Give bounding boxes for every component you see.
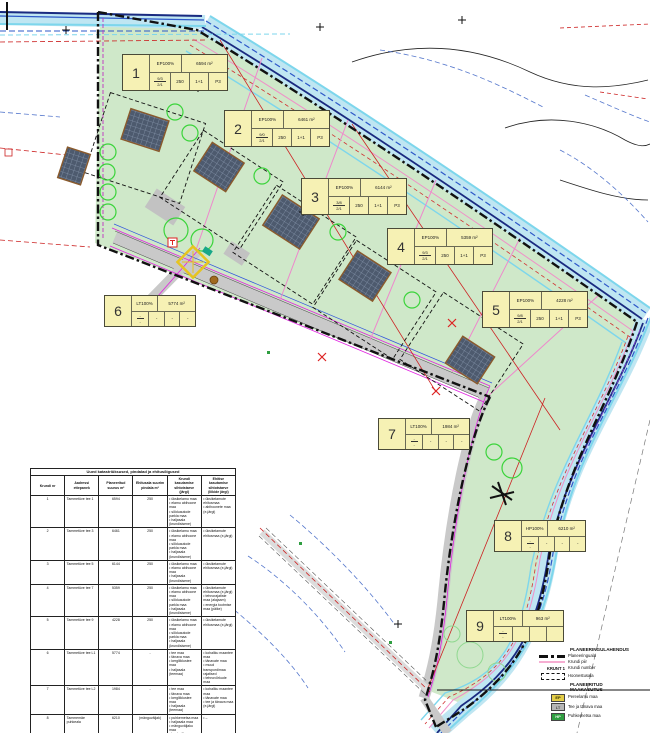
table-header-cell: Aadressi ettepanek bbox=[65, 476, 99, 496]
table-header-cell: Krundi kasutamise sihtotstarve (järgi) bbox=[167, 476, 201, 496]
plot-cell: 1+1 bbox=[292, 129, 311, 146]
plot-number: 6 bbox=[105, 296, 132, 326]
table-title: Uued katastriüksused, pindalad ja ehitus… bbox=[31, 469, 236, 476]
table-cell: 5774 bbox=[99, 649, 133, 686]
table-row: 1Tammetüve tee 16594250• üksikelamu maa … bbox=[31, 496, 236, 528]
table-row: 2Tammetüve tee 36461250• üksikelamu maa … bbox=[31, 528, 236, 560]
plot-cell bbox=[547, 627, 563, 642]
table-cell: 6210 bbox=[99, 714, 133, 733]
plot-label-4: 4 EP100%5359 m² 9/32/12501+1P3 bbox=[387, 228, 493, 265]
table-cell: Tammetüve tee L2 bbox=[65, 686, 99, 714]
legend-item: LTTee ja tänava maa bbox=[538, 703, 650, 711]
plot-cell: - bbox=[539, 537, 555, 552]
plot-label-2: 2 EP100%6461 m² 9/02/12501+1P3 bbox=[224, 110, 330, 147]
detail-plan-map: 1 EP100%6594 m² 9/32/12501+1P3 2 EP100%6… bbox=[0, 0, 650, 733]
plot-use: EP100% bbox=[150, 55, 182, 72]
plot-number: 5 bbox=[483, 292, 510, 327]
table-cell: • üksikelamute ehitusmaa (e-järgi) • teh… bbox=[201, 584, 235, 616]
table-cell: • tee maa • tänava maa • kergliiklustee … bbox=[167, 686, 201, 714]
plot-use: LT100% bbox=[494, 611, 523, 626]
table-cell: • kohaliku maantee maa • tänavate maa • … bbox=[201, 686, 235, 714]
plot-cell: - bbox=[423, 435, 439, 450]
plot-cell: 1+1 bbox=[455, 247, 474, 264]
table-header-row: Krundi nr Aadressi ettepanek Planeeritud… bbox=[31, 476, 236, 496]
plot-fraction: -- bbox=[494, 627, 513, 642]
plot-cell: - bbox=[439, 435, 455, 450]
plot-cell: - bbox=[149, 312, 165, 327]
table-cell: • üksikelamute ehitusmaa (e-järgi) bbox=[201, 560, 235, 584]
table-cell: 2 bbox=[31, 528, 65, 560]
legend-label: Pereelamu maa bbox=[568, 695, 598, 700]
plot-fraction: 9/02/1 bbox=[252, 129, 273, 146]
table-row: 3Tammetüve tee 56144250• üksikelamu maa … bbox=[31, 560, 236, 584]
plot-fraction: 9/32/1 bbox=[150, 73, 171, 90]
table-cell: • üksikelamute ehitusmaa (e-järgi) bbox=[201, 528, 235, 560]
plot-label-9: 9 LT100%963 m² -- bbox=[466, 610, 564, 642]
table-cell: 6144 bbox=[99, 560, 133, 584]
plot-label-1: 1 EP100%6594 m² 9/32/12501+1P3 bbox=[122, 54, 228, 91]
table-cell: Tammetüve tee 1 bbox=[65, 496, 99, 528]
plot-area: 4228 m² bbox=[542, 292, 587, 309]
table-row: 4Tammetüve tee 75359250• üksikelamu maa … bbox=[31, 584, 236, 616]
plot-cell: 250 bbox=[273, 129, 292, 146]
plot-label-5: 5 EP100%4228 m² 9/82/12501+1P3 bbox=[482, 291, 588, 328]
table-cell: 6594 bbox=[99, 496, 133, 528]
table-cell: 250 bbox=[133, 528, 167, 560]
table-cell: • kohaliku maantee maa • tänavate maa • … bbox=[201, 649, 235, 686]
plot-fraction: 9/32/1 bbox=[415, 247, 436, 264]
legend-label: Tee ja tänava maa bbox=[568, 705, 602, 710]
table-cell: • üksikelamute ehitusmaa (e-järgi) bbox=[201, 617, 235, 649]
table-cell: • üksikelamu maa • elamu abihoone maa • … bbox=[167, 617, 201, 649]
table-cell: - bbox=[133, 686, 167, 714]
table-cell: Tammetüve tee 9 bbox=[65, 617, 99, 649]
plot-cell: 1+1 bbox=[190, 73, 209, 90]
legend-label: Planeeringuala bbox=[568, 654, 596, 659]
plot-number: 8 bbox=[495, 521, 522, 551]
legend-heading: PLANEERINGULAHENDUS bbox=[570, 647, 650, 652]
plot-number: 1 bbox=[123, 55, 150, 90]
plot-cell: - bbox=[555, 537, 571, 552]
table-row: 8Tammemäe puhkeala6210(mänguväljak)• puh… bbox=[31, 714, 236, 733]
plot-cell: 250 bbox=[171, 73, 190, 90]
legend-item: HPPuhkemetsa maa bbox=[538, 713, 650, 721]
table-cell: 1 bbox=[31, 496, 65, 528]
table-cell: 250 bbox=[133, 617, 167, 649]
plot-fraction: -- bbox=[132, 312, 149, 327]
legend-item: Hoonestusala bbox=[538, 673, 650, 680]
plot-use: LT100% bbox=[406, 419, 432, 434]
plot-use: EP100% bbox=[510, 292, 542, 309]
table-cell: • üksikelamu maa • elamu abihoone maa • … bbox=[167, 528, 201, 560]
table-cell: • puhkemetsa maa • haljasala maa • mängu… bbox=[167, 714, 201, 733]
building bbox=[58, 147, 91, 185]
table-header-cell: Ehitise kasutamise sihtotstarve (liikide… bbox=[201, 476, 235, 496]
plot-number: 4 bbox=[388, 229, 415, 264]
plot-number: 7 bbox=[379, 419, 406, 449]
plot-cell: 1+1 bbox=[550, 310, 569, 327]
table-row: 7Tammetüve tee L21984-• tee maa • tänava… bbox=[31, 686, 236, 714]
plot-fraction: -- bbox=[406, 435, 423, 450]
plot-label-8: 8 HP100%6210 m² ----- bbox=[494, 520, 586, 552]
plot-cell: - bbox=[570, 537, 585, 552]
table-cell: Tammetüve tee 5 bbox=[65, 560, 99, 584]
plot-area: 5774 m² bbox=[158, 296, 195, 311]
plot-cell: - bbox=[165, 312, 181, 327]
legend-label: Puhkemetsa maa bbox=[568, 714, 601, 719]
table-header-cell: Planeeritud suurus m² bbox=[99, 476, 133, 496]
plot-cell: P3 bbox=[209, 73, 227, 90]
plot-area: 6594 m² bbox=[182, 55, 227, 72]
planning-area-line-symbol bbox=[539, 655, 565, 658]
building-envelope-symbol bbox=[541, 673, 565, 680]
table-cell: 6 bbox=[31, 649, 65, 686]
plot-cell: P3 bbox=[388, 197, 406, 214]
plot-area: 1984 m² bbox=[432, 419, 469, 434]
table-cell: • üksikelamu maa • elamu abihoone maa • … bbox=[167, 560, 201, 584]
plot-cell: 250 bbox=[531, 310, 550, 327]
plot-use: EP100% bbox=[329, 179, 361, 196]
plot-use: EP100% bbox=[252, 111, 284, 128]
plot-area: 6144 m² bbox=[361, 179, 406, 196]
table-cell: • üksikelamute ehitusmaa • abihoonete ma… bbox=[201, 496, 235, 528]
plot-cell: 250 bbox=[350, 197, 369, 214]
plot-label-6: 6 LT100%5774 m² ----- bbox=[104, 295, 196, 327]
table-row: 5Tammetüve tee 94228250• üksikelamu maa … bbox=[31, 617, 236, 649]
table-cell: 5 bbox=[31, 617, 65, 649]
table-cell: 250 bbox=[133, 584, 167, 616]
table-cell: 3 bbox=[31, 560, 65, 584]
table-cell: 4 bbox=[31, 584, 65, 616]
table-cell: 6461 bbox=[99, 528, 133, 560]
plot-use: LT100% bbox=[132, 296, 158, 311]
table-cell: 8 bbox=[31, 714, 65, 733]
plot-area: 6210 m² bbox=[548, 521, 585, 536]
legend-item: Planeeringuala bbox=[538, 654, 650, 659]
plot-fraction: -- bbox=[522, 537, 539, 552]
table-cell: (mänguväljak) bbox=[133, 714, 167, 733]
plot-area: 963 m² bbox=[523, 611, 563, 626]
transformer-symbol bbox=[168, 238, 177, 247]
legend-item: KRUNT 1Krundi number bbox=[538, 666, 650, 671]
plot-cell: P3 bbox=[569, 310, 587, 327]
plot-number-symbol: KRUNT 1 bbox=[547, 666, 565, 671]
table-cell: 250 bbox=[133, 560, 167, 584]
legend-label: Krundi piir bbox=[568, 660, 587, 665]
plot-cell: - bbox=[454, 435, 469, 450]
plot-use: HP100% bbox=[522, 521, 548, 536]
land-use-hp-symbol: HP bbox=[551, 713, 565, 721]
table-cell: Tammetüve tee 3 bbox=[65, 528, 99, 560]
land-use-lt-symbol: LT bbox=[551, 703, 565, 711]
plot-fraction: 9/82/1 bbox=[510, 310, 531, 327]
plot-fraction: 3/82/1 bbox=[329, 197, 350, 214]
plot-area: 5359 m² bbox=[447, 229, 492, 246]
plot-cell: 1+1 bbox=[369, 197, 388, 214]
plot-number: 2 bbox=[225, 111, 252, 146]
table-header-cell: Ehitusala suurim pindala m² bbox=[133, 476, 167, 496]
plot-number: 3 bbox=[302, 179, 329, 214]
table-cell: 1984 bbox=[99, 686, 133, 714]
legend-item: Krundi piir bbox=[538, 660, 650, 665]
legend-label: Hoonestusala bbox=[568, 674, 594, 679]
table-cell: Tammemäe puhkeala bbox=[65, 714, 99, 733]
plot-cell: P3 bbox=[311, 129, 329, 146]
plot-boundary-line-symbol bbox=[539, 661, 565, 663]
plot-cell bbox=[530, 627, 547, 642]
table-cell: Tammetüve tee 7 bbox=[65, 584, 99, 616]
table-cell: • üksikelamu maa • elamu abihoone maa • … bbox=[167, 584, 201, 616]
plot-number: 9 bbox=[467, 611, 494, 641]
table-cell: 7 bbox=[31, 686, 65, 714]
table-header-cell: Krundi nr bbox=[31, 476, 65, 496]
plot-label-3: 3 EP100%6144 m² 3/82/12501+1P3 bbox=[301, 178, 407, 215]
legend-item: EPPereelamu maa bbox=[538, 694, 650, 702]
legend: PLANEERINGULAHENDUS Planeeringuala Krund… bbox=[538, 645, 650, 722]
table-cell: Tammetüve tee L1 bbox=[65, 649, 99, 686]
plot-cell: 250 bbox=[436, 247, 455, 264]
land-use-ep-symbol: EP bbox=[551, 694, 565, 702]
table-cell: 4228 bbox=[99, 617, 133, 649]
plot-cell bbox=[513, 627, 530, 642]
plots-data-table: Uued katastriüksused, pindalad ja ehitus… bbox=[30, 468, 236, 733]
table-cell: 5359 bbox=[99, 584, 133, 616]
plot-cell: P3 bbox=[474, 247, 492, 264]
plot-area: 6461 m² bbox=[284, 111, 329, 128]
legend-label: Krundi number bbox=[568, 666, 595, 671]
table-row: 6Tammetüve tee L15774-• tee maa • tänava… bbox=[31, 649, 236, 686]
table-cell: • üksikelamu maa • elamu abihoone maa • … bbox=[167, 496, 201, 528]
table-cell: 250 bbox=[133, 496, 167, 528]
plot-use: EP100% bbox=[415, 229, 447, 246]
table-cell: • tee maa • tänava maa • kergliiklustee … bbox=[167, 649, 201, 686]
legend-heading: PLANEERITUD MAAKASUTUS bbox=[570, 682, 650, 692]
table-cell: • – bbox=[201, 714, 235, 733]
plot-cell: - bbox=[180, 312, 195, 327]
table-cell: - bbox=[133, 649, 167, 686]
plot-label-7: 7 LT100%1984 m² ----- bbox=[378, 418, 470, 450]
